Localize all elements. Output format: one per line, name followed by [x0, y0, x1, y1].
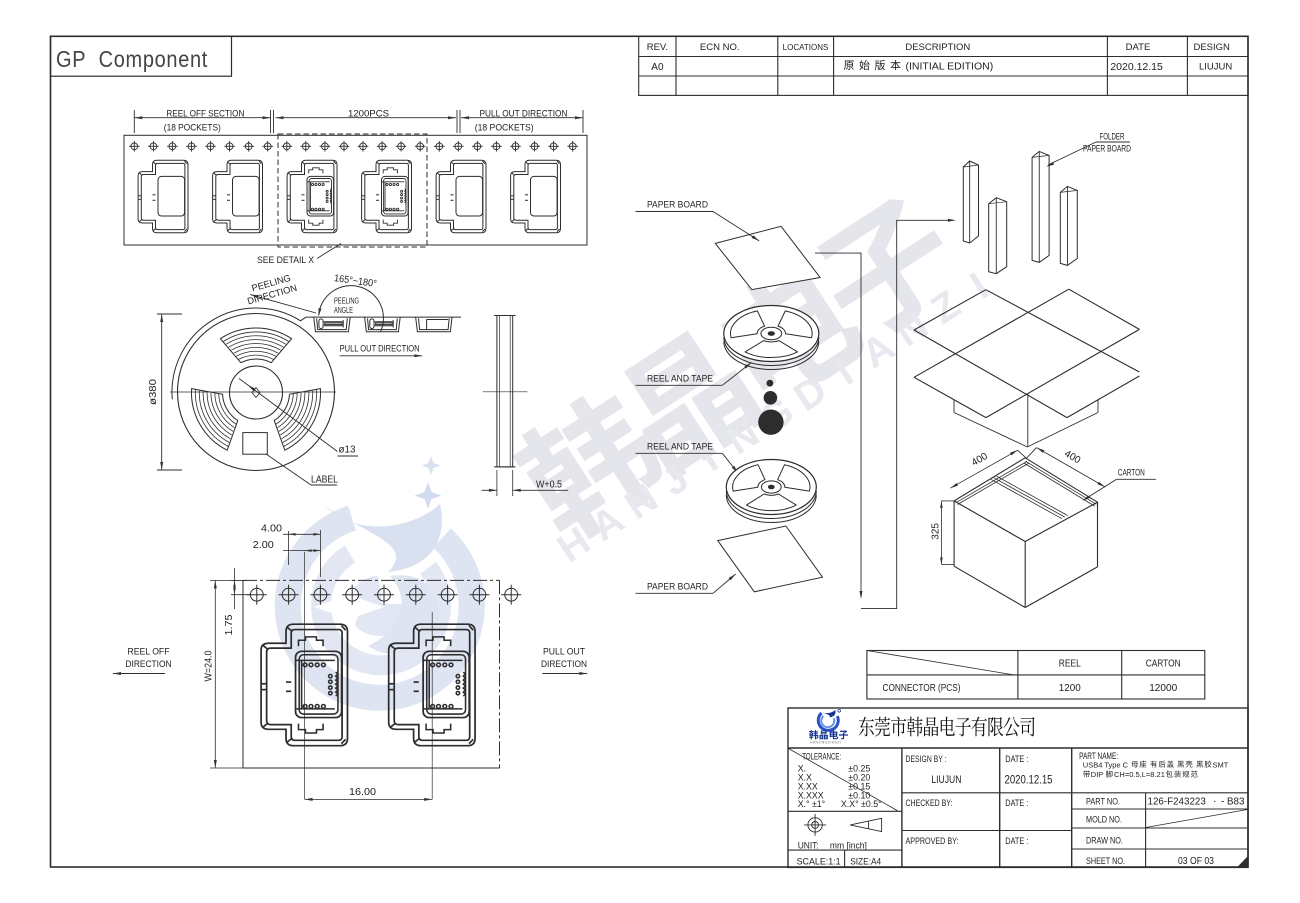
svg-text:HANJINGDIANZI: HANJINGDIANZI: [810, 741, 841, 745]
svg-text:12000: 12000: [1149, 683, 1177, 694]
svg-text:- B83: - B83: [1221, 796, 1245, 807]
svg-text:PART NAME:: PART NAME:: [1079, 751, 1118, 761]
svg-text:SEE DETAIL X: SEE DETAIL X: [257, 255, 315, 266]
svg-text:PAPER BOARD: PAPER BOARD: [647, 200, 708, 211]
svg-text:DIRECTION: DIRECTION: [126, 659, 172, 670]
svg-text:FOLDER: FOLDER: [1100, 132, 1125, 142]
svg-text:CARTON: CARTON: [1118, 468, 1145, 478]
svg-text:PAPER BOARD: PAPER BOARD: [647, 582, 708, 593]
svg-text:126-F243223: 126-F243223: [1148, 796, 1207, 807]
svg-text:DATE: DATE: [1126, 42, 1151, 53]
svg-text:SCALE:1:1: SCALE:1:1: [797, 856, 841, 866]
svg-text:REEL AND TAPE: REEL AND TAPE: [647, 374, 713, 385]
svg-text:PULL OUT DIRECTION: PULL OUT DIRECTION: [480, 109, 568, 120]
svg-text:2020.12.15: 2020.12.15: [1005, 775, 1053, 787]
svg-text:ø380: ø380: [148, 379, 159, 405]
svg-text:CONNECTOR (PCS): CONNECTOR (PCS): [883, 682, 961, 694]
svg-text:CH=0.5,L=8.21: CH=0.5,L=8.21: [1114, 770, 1165, 779]
svg-text:UNIT:: UNIT:: [798, 840, 819, 850]
svg-text:A0: A0: [651, 62, 664, 73]
svg-text:REEL AND TAPE: REEL AND TAPE: [647, 442, 713, 453]
svg-text:REV.: REV.: [647, 42, 668, 53]
svg-text:X.° ±1°: X.° ±1°: [798, 799, 826, 809]
svg-text:DRAW NO.: DRAW NO.: [1086, 835, 1123, 845]
svg-text:4.00: 4.00: [261, 524, 282, 535]
svg-text:LABEL: LABEL: [311, 474, 338, 486]
svg-text:PULL OUT DIRECTION: PULL OUT DIRECTION: [340, 344, 420, 355]
svg-text:MOLD NO.: MOLD NO.: [1086, 814, 1122, 824]
svg-text:REEL OFF SECTION: REEL OFF SECTION: [166, 109, 244, 120]
svg-text:PULL OUT: PULL OUT: [543, 647, 585, 658]
svg-text:CARTON: CARTON: [1146, 659, 1181, 670]
svg-text:LOCATIONS: LOCATIONS: [783, 43, 829, 52]
svg-text:GP Component: GP Component: [56, 46, 208, 72]
svg-text:DIRECTION: DIRECTION: [541, 659, 587, 670]
svg-text:1200PCS: 1200PCS: [348, 109, 389, 120]
svg-text:REEL: REEL: [1059, 659, 1081, 670]
svg-text:1200: 1200: [1059, 683, 1081, 694]
svg-text:DIP: DIP: [1091, 770, 1104, 779]
svg-text:SMT: SMT: [1213, 760, 1229, 769]
svg-text:16.00: 16.00: [349, 787, 376, 798]
svg-text:DATE :: DATE :: [1005, 836, 1028, 846]
svg-text:REEL OFF: REEL OFF: [128, 647, 170, 658]
svg-text:LIUJUN: LIUJUN: [931, 774, 961, 786]
svg-text:W=24.0: W=24.0: [204, 650, 215, 681]
svg-text:LIUJUN: LIUJUN: [1199, 62, 1232, 73]
svg-text:2020.12.15: 2020.12.15: [1110, 61, 1163, 73]
svg-text:(18 POCKETS): (18 POCKETS): [164, 123, 221, 134]
svg-text:DATE :: DATE :: [1005, 754, 1028, 764]
svg-text:SIZE:A4: SIZE:A4: [850, 856, 881, 866]
svg-text:PART NO.: PART NO.: [1086, 796, 1120, 806]
svg-text:DESIGN: DESIGN: [1193, 42, 1230, 53]
svg-text:mm [inch]: mm [inch]: [830, 840, 867, 850]
svg-text:CHECKED BY:: CHECKED BY:: [906, 798, 953, 808]
svg-text:DESCRIPTION: DESCRIPTION: [905, 42, 970, 53]
svg-text:2.00: 2.00: [253, 540, 274, 551]
svg-text:ANGLE: ANGLE: [334, 305, 353, 315]
svg-text:(INITIAL EDITION): (INITIAL EDITION): [906, 61, 994, 73]
svg-text:USB4 Type C: USB4 Type C: [1083, 760, 1129, 769]
svg-text:SHEET NO.: SHEET NO.: [1086, 856, 1125, 866]
svg-text:DESIGN BY :: DESIGN BY :: [906, 754, 947, 764]
svg-text:PEELING: PEELING: [334, 296, 359, 306]
svg-text:X.X° ±0.5°: X.X° ±0.5°: [841, 799, 882, 809]
svg-text:W+0.5: W+0.5: [536, 480, 562, 491]
svg-text:DATE :: DATE :: [1005, 798, 1028, 808]
svg-text:·: ·: [1213, 795, 1217, 807]
svg-text:03 OF 03: 03 OF 03: [1178, 856, 1214, 867]
svg-text:TOLERANCE:: TOLERANCE:: [802, 751, 841, 761]
svg-text:325: 325: [931, 523, 942, 540]
svg-text:(18 POCKETS): (18 POCKETS): [475, 123, 534, 134]
svg-text:1.75: 1.75: [224, 614, 235, 635]
svg-text:ø13: ø13: [339, 445, 356, 456]
svg-text:ECN NO.: ECN NO.: [700, 42, 740, 53]
svg-text:APPROVED BY:: APPROVED BY:: [906, 836, 959, 846]
